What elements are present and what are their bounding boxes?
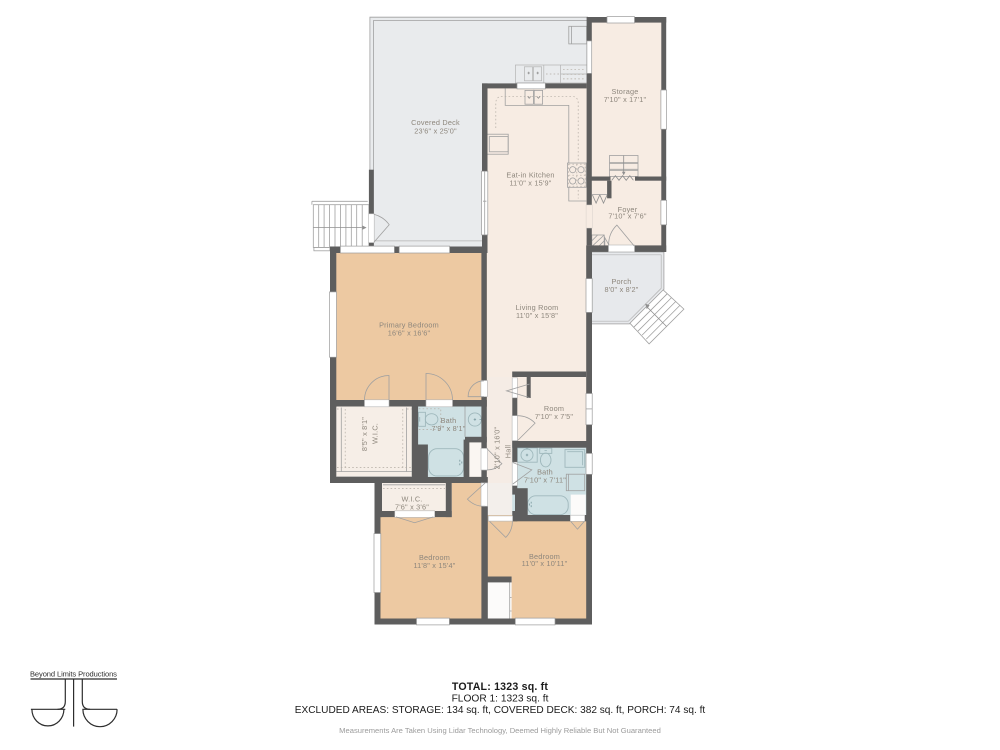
svg-text:7'9" x 8'1": 7'9" x 8'1" <box>431 424 465 433</box>
svg-text:Beyond Limits Productions: Beyond Limits Productions <box>30 670 117 679</box>
svg-text:TOTAL: 1323 sq. ft: TOTAL: 1323 sq. ft <box>452 681 548 693</box>
svg-text:11'0" x 15'8": 11'0" x 15'8" <box>516 311 558 320</box>
svg-text:EXCLUDED AREAS: STORAGE: 134 s: EXCLUDED AREAS: STORAGE: 134 sq. ft, COV… <box>295 705 706 716</box>
svg-text:8'5" x 8'1": 8'5" x 8'1" <box>360 417 369 451</box>
svg-text:11'0" x 15'9": 11'0" x 15'9" <box>509 178 551 187</box>
svg-text:W.I.C.: W.I.C. <box>371 423 380 444</box>
svg-text:2'10" x 16'0": 2'10" x 16'0" <box>492 426 501 469</box>
svg-text:11'0" x 10'11": 11'0" x 10'11" <box>522 559 568 568</box>
svg-text:7'10" x 7'6": 7'10" x 7'6" <box>608 211 647 220</box>
svg-text:7'10" x 7'5": 7'10" x 7'5" <box>535 412 574 421</box>
svg-text:Hall: Hall <box>504 445 513 459</box>
svg-text:11'8" x 15'4": 11'8" x 15'4" <box>413 561 455 570</box>
svg-text:16'6" x 16'6": 16'6" x 16'6" <box>388 328 431 337</box>
svg-text:7'10" x 17'1": 7'10" x 17'1" <box>604 95 647 104</box>
svg-text:Measurements Are Taken Using L: Measurements Are Taken Using Lidar Techn… <box>339 726 661 735</box>
svg-text:FLOOR 1: 1323 sq. ft: FLOOR 1: 1323 sq. ft <box>452 694 549 705</box>
svg-text:8'0" x 8'2": 8'0" x 8'2" <box>604 285 638 294</box>
svg-text:7'6" x 3'6": 7'6" x 3'6" <box>395 502 429 511</box>
svg-text:23'6" x 25'0": 23'6" x 25'0" <box>414 126 457 135</box>
svg-text:7'10" x 7'11": 7'10" x 7'11" <box>524 475 566 484</box>
